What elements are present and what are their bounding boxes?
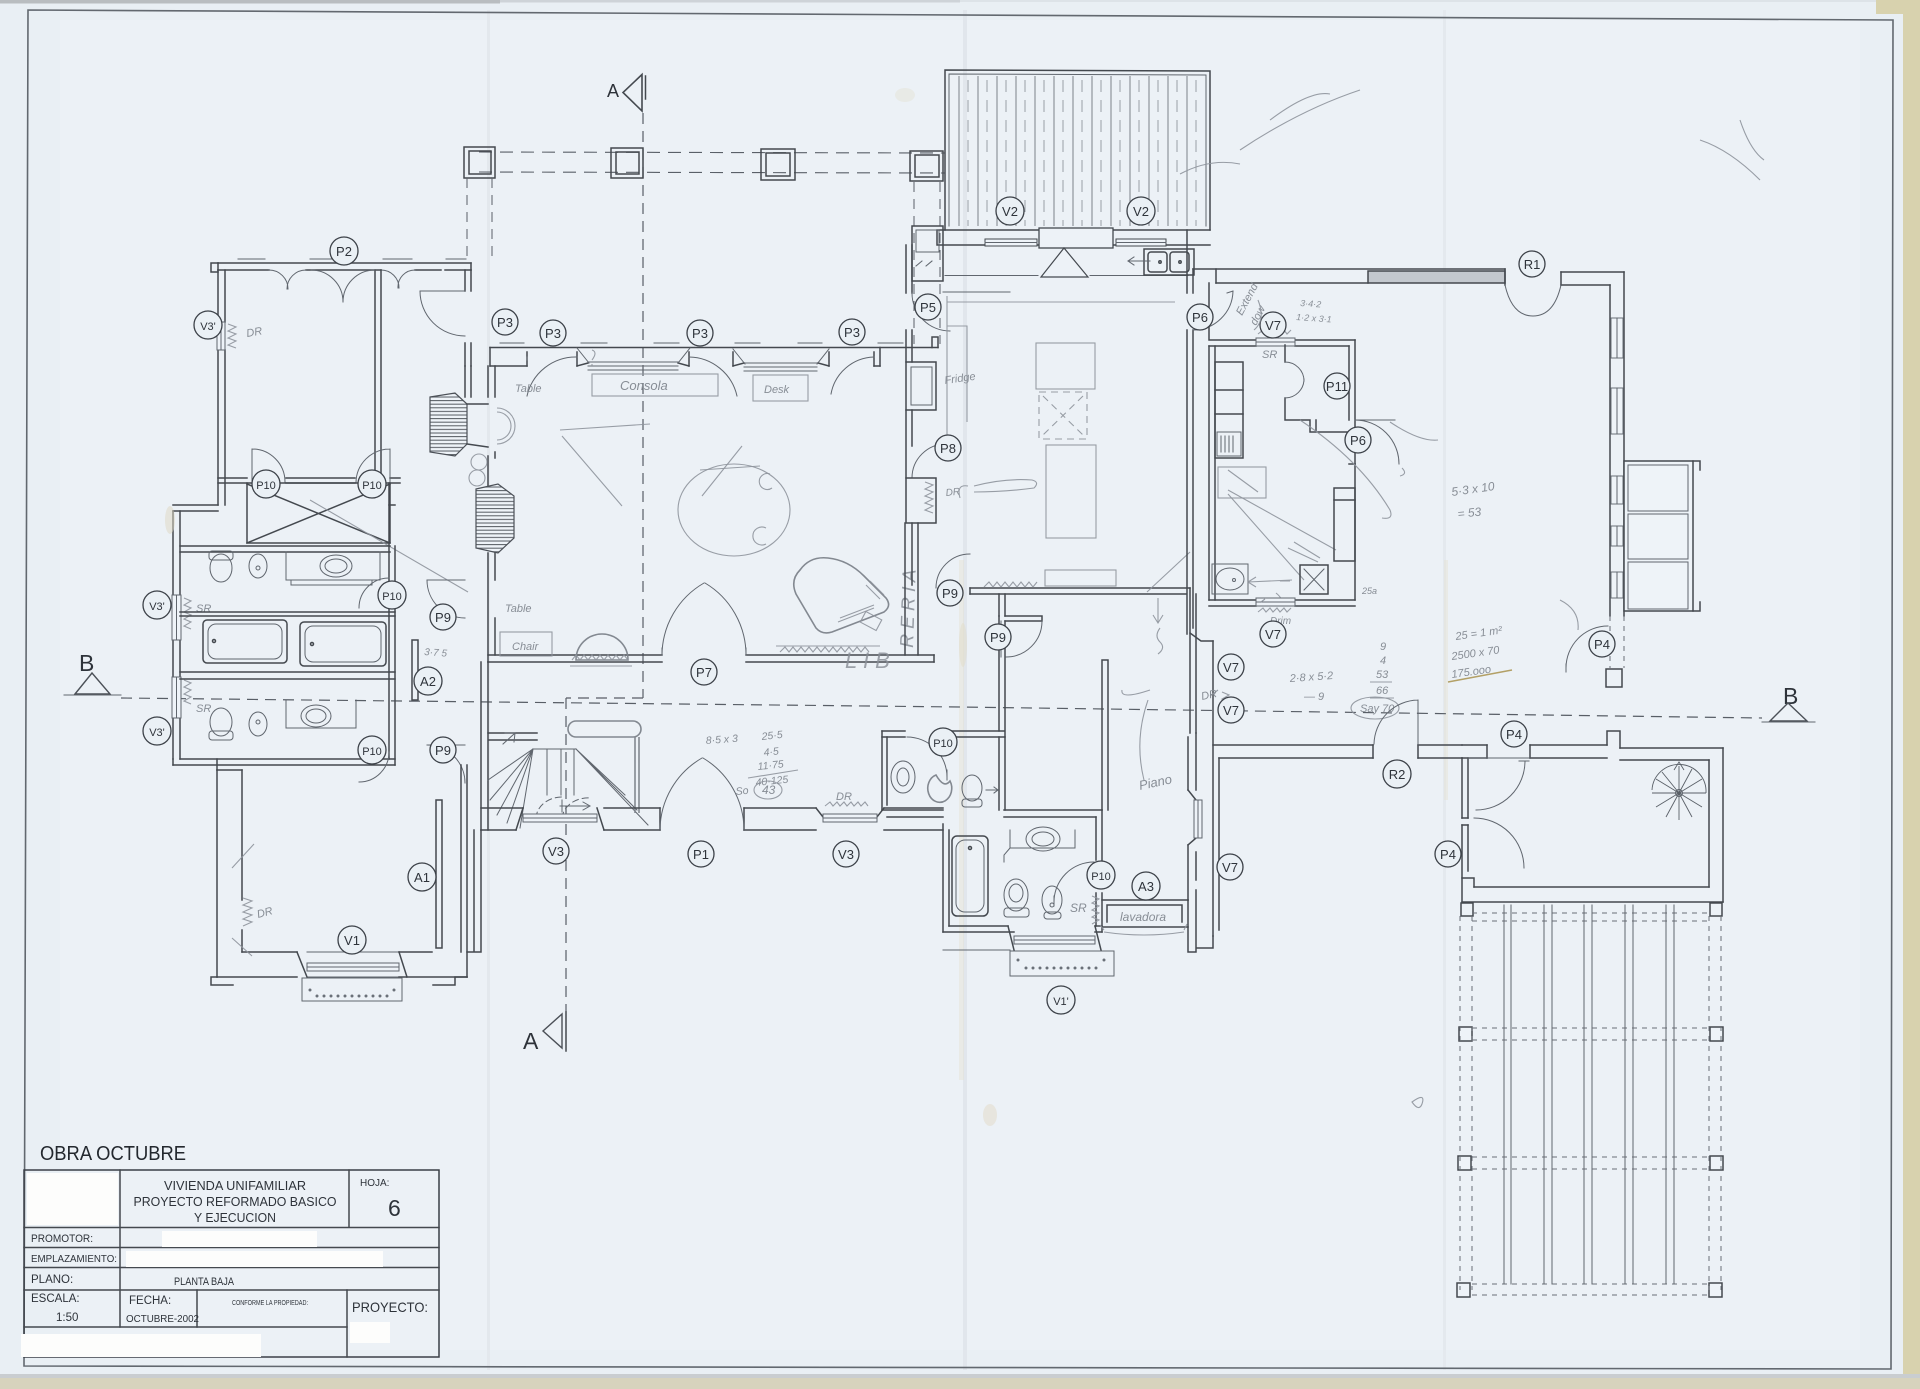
svg-text:OBRA OCTUBRE: OBRA OCTUBRE xyxy=(40,1143,186,1165)
svg-text:lavadora: lavadora xyxy=(1120,910,1166,924)
svg-text:P3: P3 xyxy=(545,326,561,341)
svg-text:V3: V3 xyxy=(838,847,854,862)
svg-text:HOJA:: HOJA: xyxy=(360,1178,389,1189)
svg-text:A2: A2 xyxy=(420,674,436,689)
svg-text:P10: P10 xyxy=(382,591,402,603)
svg-text:A1: A1 xyxy=(414,870,430,885)
svg-text:R E R I A: R E R I A xyxy=(897,569,921,648)
svg-text:V1': V1' xyxy=(1053,996,1069,1008)
svg-text:DR: DR xyxy=(836,791,852,803)
svg-text:PROYECTO REFORMADO BASICO: PROYECTO REFORMADO BASICO xyxy=(134,1194,337,1209)
svg-text:V7: V7 xyxy=(1223,660,1239,675)
svg-text:P9: P9 xyxy=(990,630,1006,645)
svg-text:P3: P3 xyxy=(692,326,708,341)
svg-text:V7: V7 xyxy=(1222,860,1238,875)
svg-text:A: A xyxy=(607,81,619,101)
svg-text:DR: DR xyxy=(945,487,961,499)
svg-text:P3: P3 xyxy=(844,325,860,340)
svg-text:25a: 25a xyxy=(1361,586,1377,596)
svg-text:A: A xyxy=(523,1028,539,1054)
svg-text:PROYECTO:: PROYECTO: xyxy=(352,1299,428,1315)
svg-text:OCTUBRE-2002: OCTUBRE-2002 xyxy=(126,1313,199,1325)
svg-text:A3: A3 xyxy=(1138,879,1154,894)
svg-text:FECHA:: FECHA: xyxy=(129,1295,171,1307)
svg-text:P1: P1 xyxy=(693,847,709,862)
svg-text:EMPLAZAMIENTO:: EMPLAZAMIENTO: xyxy=(31,1253,117,1265)
svg-text:P4: P4 xyxy=(1440,847,1456,862)
svg-text:SR: SR xyxy=(196,603,211,615)
svg-text:53: 53 xyxy=(1376,669,1389,681)
svg-text:3·4·2: 3·4·2 xyxy=(1300,298,1322,309)
svg-text:V1: V1 xyxy=(344,933,360,948)
svg-text:V3': V3' xyxy=(200,321,216,333)
svg-text:P4: P4 xyxy=(1506,727,1522,742)
svg-text:L I B: L I B xyxy=(845,648,890,673)
svg-text:— 9: — 9 xyxy=(1303,691,1324,703)
svg-text:R2: R2 xyxy=(1389,767,1406,782)
svg-text:SR: SR xyxy=(196,703,211,715)
svg-text:V7: V7 xyxy=(1265,627,1281,642)
svg-text:R1: R1 xyxy=(1524,257,1541,272)
svg-text:= 53: = 53 xyxy=(1457,505,1482,521)
svg-text:P6: P6 xyxy=(1350,433,1366,448)
svg-text:V3': V3' xyxy=(149,601,165,613)
svg-text:SR: SR xyxy=(1070,901,1087,915)
svg-text:1:50: 1:50 xyxy=(56,1312,78,1324)
svg-text:V2: V2 xyxy=(1002,204,1018,219)
svg-text:P3: P3 xyxy=(497,315,513,330)
svg-text:P9: P9 xyxy=(942,586,958,601)
svg-text:P6: P6 xyxy=(1192,310,1208,325)
svg-text:V7: V7 xyxy=(1265,318,1281,333)
svg-text:PLANTA BAJA: PLANTA BAJA xyxy=(174,1276,235,1288)
svg-text:SR: SR xyxy=(1262,349,1277,361)
svg-text:ESCALA:: ESCALA: xyxy=(31,1293,80,1305)
svg-text:P5: P5 xyxy=(920,300,936,315)
svg-text:V3': V3' xyxy=(149,727,165,739)
svg-text:P10: P10 xyxy=(256,480,276,492)
svg-text:P4: P4 xyxy=(1594,637,1610,652)
svg-text:P10: P10 xyxy=(362,480,382,492)
svg-text:6: 6 xyxy=(388,1195,401,1221)
svg-text:Consola: Consola xyxy=(620,378,668,393)
svg-text:P10: P10 xyxy=(1091,871,1111,883)
svg-text:Table: Table xyxy=(505,603,532,615)
svg-text:Y EJECUCION: Y EJECUCION xyxy=(194,1210,276,1225)
svg-text:8·5 x 3: 8·5 x 3 xyxy=(705,733,738,747)
svg-text:V3: V3 xyxy=(548,844,564,859)
svg-text:PLANO:: PLANO: xyxy=(31,1274,73,1286)
svg-text:PROMOTOR:: PROMOTOR: xyxy=(31,1233,93,1245)
svg-text:VIVIENDA UNIFAMILIAR: VIVIENDA UNIFAMILIAR xyxy=(164,1178,306,1193)
svg-text:P10: P10 xyxy=(933,738,953,750)
svg-text:4·5: 4·5 xyxy=(763,745,780,759)
svg-text:Chair: Chair xyxy=(512,641,540,653)
svg-text:P8: P8 xyxy=(940,441,956,456)
svg-text:Desk: Desk xyxy=(764,384,790,396)
svg-text:P7: P7 xyxy=(696,665,712,680)
svg-text:Table: Table xyxy=(515,383,542,395)
svg-text:CONFORME LA PROPIEDAD:: CONFORME LA PROPIEDAD: xyxy=(232,1298,308,1307)
svg-text:P11: P11 xyxy=(1326,379,1348,394)
svg-text:P9: P9 xyxy=(435,610,451,625)
svg-text:66: 66 xyxy=(1376,685,1389,697)
svg-text:9: 9 xyxy=(1380,641,1386,653)
svg-text:P10: P10 xyxy=(362,746,382,758)
svg-text:3·7 5: 3·7 5 xyxy=(424,647,448,660)
svg-text:So: So xyxy=(735,785,749,798)
svg-text:V2: V2 xyxy=(1133,204,1149,219)
svg-text:25·5: 25·5 xyxy=(760,729,783,743)
svg-text:P9: P9 xyxy=(435,743,451,758)
svg-text:43: 43 xyxy=(762,783,776,797)
svg-text:4: 4 xyxy=(1380,655,1386,667)
svg-text:P2: P2 xyxy=(336,244,352,259)
svg-text:V7: V7 xyxy=(1223,703,1239,718)
